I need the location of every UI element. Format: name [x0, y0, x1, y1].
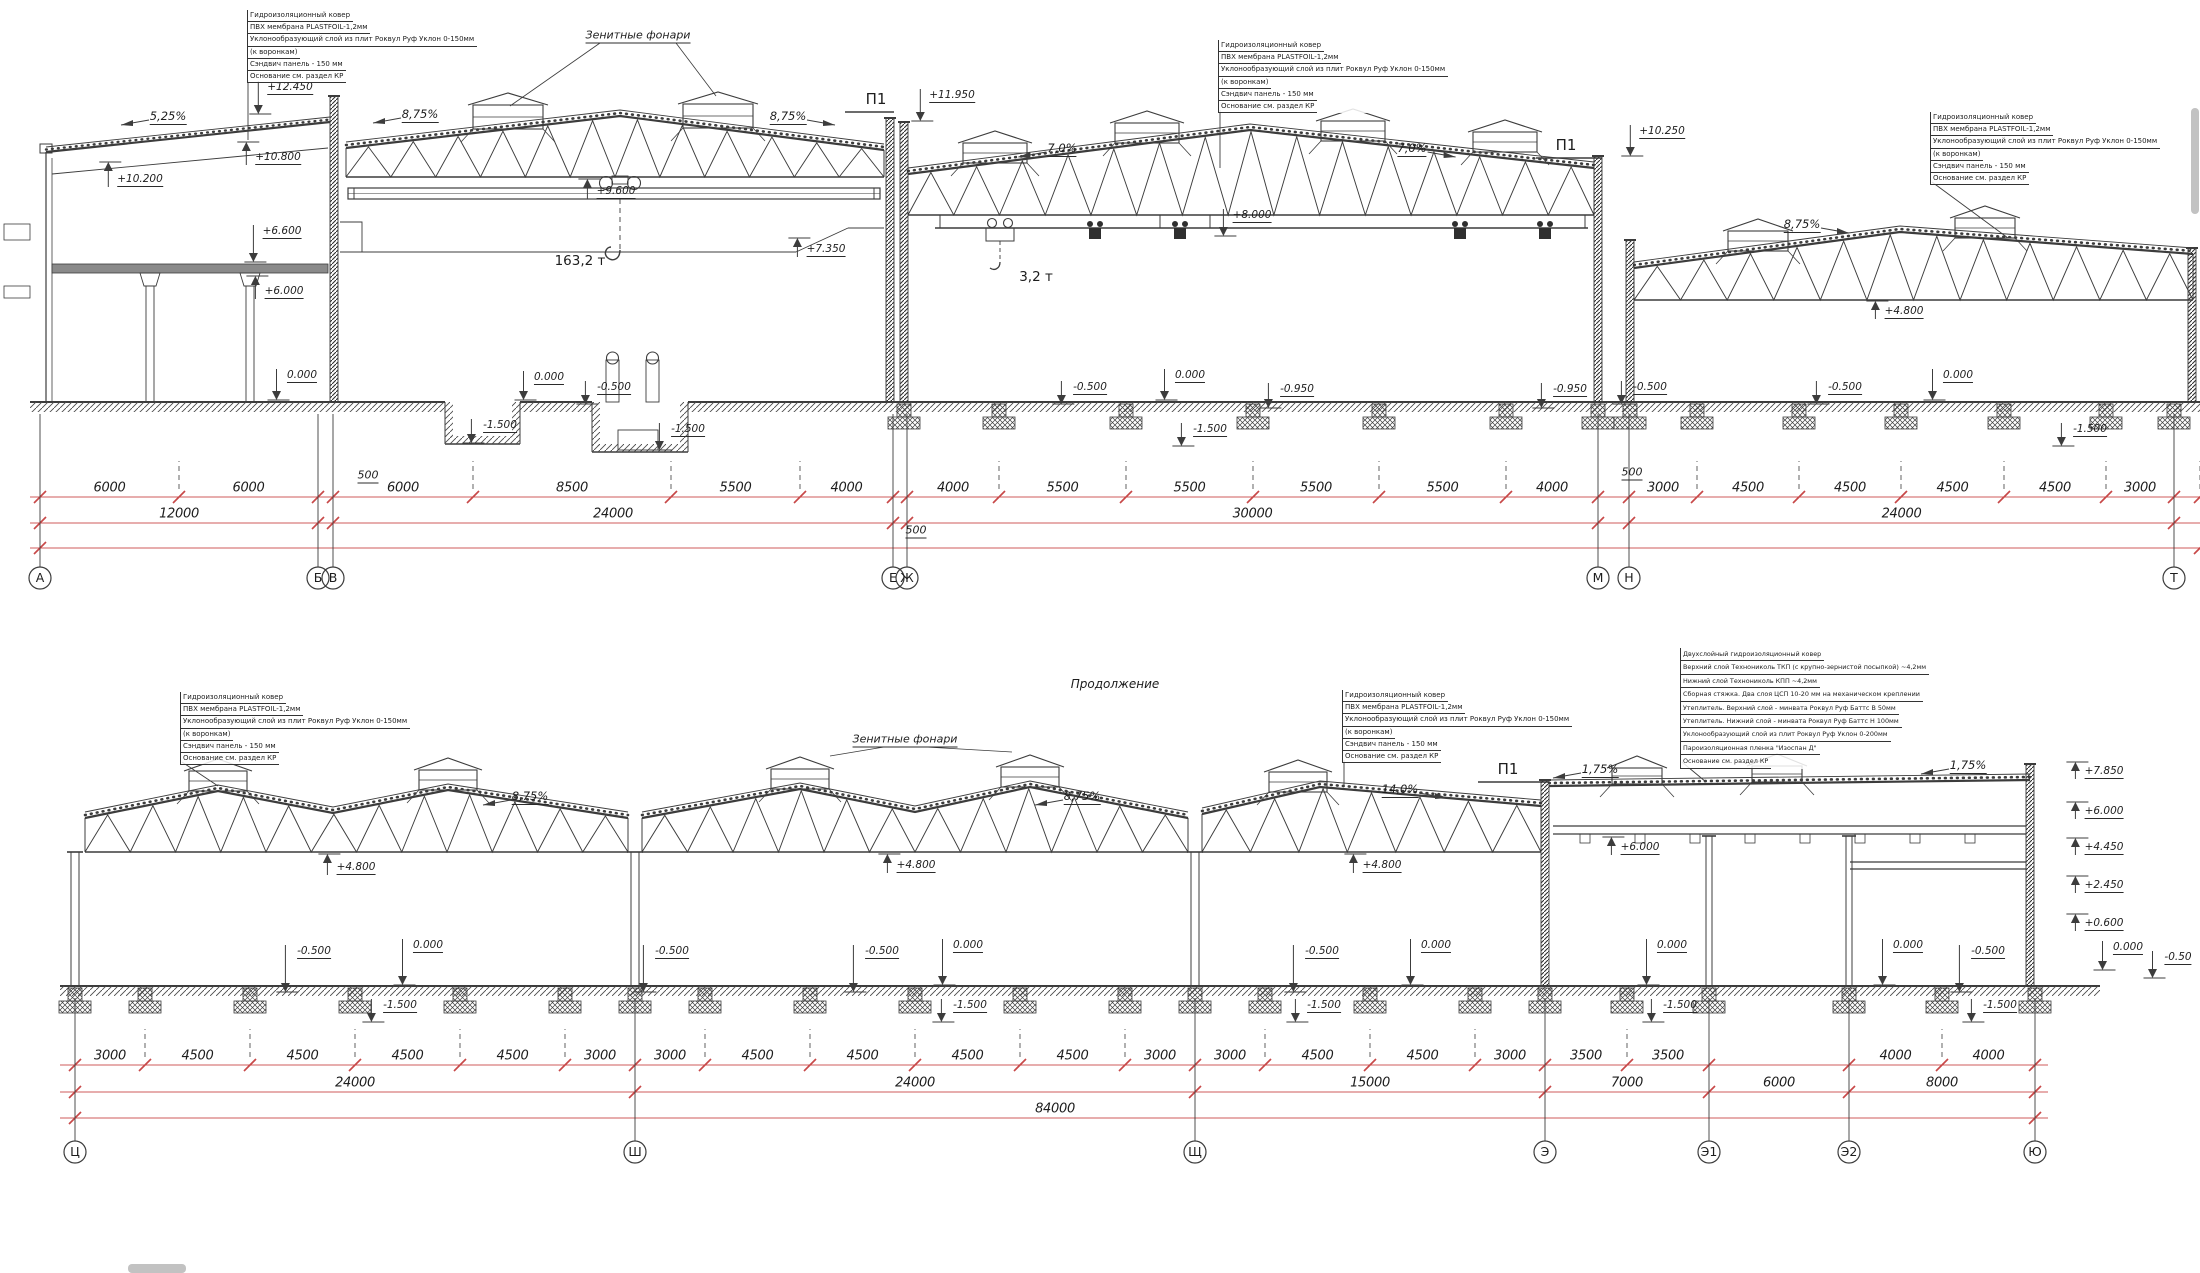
dim-label: 7000 — [1611, 1076, 1643, 1091]
dim-label: 5500 — [1174, 481, 1206, 496]
dim-label: 3000 — [1647, 481, 1679, 496]
elevation-label: -0.500 — [655, 945, 689, 959]
axis-bubble-label: Ц — [70, 1144, 80, 1159]
axis-bubble-label: Н — [1624, 570, 1633, 585]
elevation-label: -0.500 — [1073, 381, 1107, 395]
roof-callout-line: Пароизоляционная пленка "Изоспан Д" — [1681, 742, 1820, 755]
roof-assembly-callout: Двухслойный гидроизоляционный коверВерхн… — [1680, 648, 1929, 769]
elevation-label: -1.500 — [953, 999, 987, 1013]
slope-label: 8,75% — [512, 789, 549, 805]
roof-callout-line: Гидроизоляционный ковер — [1219, 40, 1324, 52]
elevation-label: +4.450 — [2085, 841, 2124, 855]
dim-label: 6000 — [1763, 1076, 1795, 1091]
roof-callout-line: Основание см. раздел КР — [1931, 173, 2029, 185]
elevation-label: +4.800 — [1885, 305, 1924, 319]
slope-label: 1,75% — [1582, 762, 1619, 778]
elevation-label: -1.500 — [383, 999, 417, 1013]
elevation-label: 0.000 — [1175, 369, 1205, 383]
dim-label: 4000 — [937, 481, 969, 496]
dim-label: 4500 — [1732, 481, 1764, 496]
roof-callout-line: Гидроизоляционный ковер — [1931, 112, 2036, 124]
slope-label: 8,75% — [1064, 789, 1101, 805]
dim-label: 15000 — [1350, 1076, 1390, 1091]
roof-callout-line: Нижний слой Технониколь КПП ~4,2мм — [1681, 675, 1820, 688]
continuation-label: Продолжение — [1071, 677, 1160, 691]
dim-label: 5500 — [720, 481, 752, 496]
elevation-label: +8.000 — [1233, 209, 1272, 223]
roof-callout-line: (к воронкам) — [248, 47, 300, 59]
axis-bubble-label: Щ — [1188, 1144, 1202, 1159]
roof-callout-line: Сэндвич панель - 150 мм — [181, 741, 279, 753]
roof-callout-line: (к воронкам) — [181, 729, 233, 741]
dim-label: 3000 — [654, 1049, 686, 1064]
roof-callout-line: Сэндвич панель - 150 мм — [248, 59, 346, 71]
dim-label: 6000 — [94, 481, 126, 496]
slope-label: 7,0% — [1047, 141, 1076, 157]
roof-callout-line: Утеплитель. Верхний слой - минвата Рокву… — [1681, 702, 1899, 715]
elevation-label: +11.950 — [929, 89, 975, 103]
elevation-label: 0.000 — [2113, 941, 2143, 955]
dim-label: 24000 — [1882, 507, 1922, 522]
elevation-label: -0.950 — [1280, 383, 1314, 397]
roof-callout-line: Основание см. раздел КР — [1681, 755, 1771, 768]
elevation-label: -1.500 — [1983, 999, 2017, 1013]
elevation-label: 0.000 — [413, 939, 443, 953]
dim-label: 4500 — [847, 1049, 879, 1064]
roof-callout-line: ПВХ мембрана PLASTFOIL-1,2мм — [1343, 702, 1465, 714]
roof-callout-line: Сэндвич панель - 150 мм — [1219, 89, 1317, 101]
elevation-label: -1.500 — [1307, 999, 1341, 1013]
elevation-label: +0.600 — [2085, 917, 2124, 931]
drawing-canvas: Продолжение 163,2 т 3,2 т Зенитные фонар… — [0, 0, 2200, 1273]
elevation-label: +2.450 — [2085, 879, 2124, 893]
elevation-label: 0.000 — [534, 371, 564, 385]
dim-label-small: 500 — [1622, 466, 1643, 481]
hoist-capacity-label: 3,2 т — [1019, 269, 1053, 285]
roof-assembly-callout: Гидроизоляционный коверПВХ мембрана PLAS… — [1342, 690, 1572, 763]
elevation-label: +6.000 — [2085, 805, 2124, 819]
marker-layer — [99, 43, 2165, 1022]
elevation-label: 0.000 — [1943, 369, 1973, 383]
skylights-label-bottom: Зенитные фонари — [853, 733, 958, 748]
dim-label: 3500 — [1570, 1049, 1602, 1064]
slope-label: 8,75% — [770, 109, 807, 125]
roof-callout-line: ПВХ мембрана PLASTFOIL-1,2мм — [181, 704, 303, 716]
dim-label: 5500 — [1047, 481, 1079, 496]
elevation-label: -1.500 — [1663, 999, 1697, 1013]
dim-label: 4500 — [742, 1049, 774, 1064]
roof-callout-line: (к воронкам) — [1219, 77, 1271, 89]
dim-label: 3000 — [1214, 1049, 1246, 1064]
roof-callout-line: Уклонообразующий слой из плит Роквул Руф… — [1931, 136, 2160, 148]
elevation-label: -0.500 — [1971, 945, 2005, 959]
elevation-label: +4.800 — [337, 861, 376, 875]
dim-label: 8500 — [556, 481, 588, 496]
axis-bubble-label: А — [36, 570, 45, 585]
dim-label: 30000 — [1233, 507, 1273, 522]
roof-callout-line: Основание см. раздел КР — [1343, 751, 1441, 763]
roof-callout-line: Основание см. раздел КР — [181, 753, 279, 765]
elevation-label: -0.500 — [1305, 945, 1339, 959]
roof-callout-line: Сборная стяжка. Два слоя ЦСП 10-20 мм на… — [1681, 688, 1923, 701]
axis-bubble-label: Т — [2170, 570, 2178, 585]
slope-label: 7,0% — [1397, 141, 1426, 157]
dim-label: 4500 — [182, 1049, 214, 1064]
dim-label: 4500 — [1407, 1049, 1439, 1064]
dim-label: 6000 — [387, 481, 419, 496]
roof-callout-line: Основание см. раздел КР — [248, 71, 346, 83]
roof-assembly-callout: Гидроизоляционный коверПВХ мембрана PLAS… — [1930, 112, 2160, 185]
dim-label: 4500 — [287, 1049, 319, 1064]
dim-label: 24000 — [335, 1076, 375, 1091]
roof-callout-line: Верхний слой Технониколь ТКП (с крупно-з… — [1681, 661, 1929, 674]
dim-label: 4500 — [1057, 1049, 1089, 1064]
elevation-label: +6.000 — [265, 285, 304, 299]
roof-callout-line: (к воронкам) — [1931, 149, 1983, 161]
elevation-label: +7.850 — [2085, 765, 2124, 779]
elevation-label: +10.250 — [1639, 125, 1685, 139]
dim-label: 3000 — [94, 1049, 126, 1064]
elevation-label: 0.000 — [1421, 939, 1451, 953]
dim-label: 24000 — [593, 507, 633, 522]
dim-label-small: 500 — [906, 524, 927, 539]
axis-bubble-label: Э2 — [1841, 1144, 1858, 1159]
dim-label: 3000 — [2124, 481, 2156, 496]
slope-label: 1,75% — [1950, 758, 1987, 774]
axis-bubble-label: М — [1593, 570, 1604, 585]
roof-callout-line: Двухслойный гидроизоляционный ковер — [1681, 648, 1824, 661]
elevation-label: -1.500 — [483, 419, 517, 433]
dim-label: 12000 — [159, 507, 199, 522]
slope-label: 8,75% — [1784, 217, 1821, 233]
axis-bubble-label: Ж — [900, 570, 913, 585]
dimension-layer — [30, 461, 2200, 1124]
dim-label: 5500 — [1427, 481, 1459, 496]
roof-callout-line: (к воронкам) — [1343, 727, 1395, 739]
dim-label: 3000 — [584, 1049, 616, 1064]
axis-bubble-label: Э — [1541, 1144, 1550, 1159]
axis-bubble-label: Б — [314, 570, 323, 585]
skylights-label-top: Зенитные фонари — [586, 29, 691, 44]
slope-label: 5,25% — [150, 109, 187, 125]
dim-label: 4500 — [1937, 481, 1969, 496]
roof-callout-line: Утеплитель. Нижний слой - минвата Роквул… — [1681, 715, 1902, 728]
roof-assembly-callout: Гидроизоляционный коверПВХ мембрана PLAS… — [180, 692, 410, 765]
dim-label: 4000 — [1973, 1049, 2005, 1064]
elevation-label: -0.50 — [2164, 951, 2191, 965]
dim-label: 3000 — [1494, 1049, 1526, 1064]
dim-label: 5500 — [1300, 481, 1332, 496]
axis-bubble-label: В — [329, 570, 338, 585]
section-mark-p1: П1 — [866, 90, 887, 108]
elevation-label: +10.800 — [255, 151, 301, 165]
elevation-label: -0.500 — [1828, 381, 1862, 395]
dim-label: 3500 — [1652, 1049, 1684, 1064]
elevation-label: -0.500 — [297, 945, 331, 959]
axis-bubble-label: Ю — [2028, 1144, 2042, 1159]
roof-callout-line: Гидроизоляционный ковер — [1343, 690, 1448, 702]
roof-callout-line: Уклонообразующий слой из плит Роквул Руф… — [248, 34, 477, 46]
dim-label: 4000 — [1880, 1049, 1912, 1064]
dim-label-small: 500 — [358, 469, 379, 484]
elevation-label: -0.500 — [865, 945, 899, 959]
elevation-label: 0.000 — [953, 939, 983, 953]
dim-label: 6000 — [233, 481, 265, 496]
elevation-label: -0.950 — [1553, 383, 1587, 397]
elevation-label: +4.800 — [897, 859, 936, 873]
elevation-label: -0.500 — [597, 381, 631, 395]
crane-capacity-label: 163,2 т — [555, 253, 606, 269]
dim-label: 4000 — [831, 481, 863, 496]
roof-callout-line: Сэндвич панель - 150 мм — [1931, 161, 2029, 173]
elevation-label: +7.350 — [807, 243, 846, 257]
elevation-label: +6.000 — [1621, 841, 1660, 855]
roof-callout-line: Уклонообразующий слой из плит Роквул Руф… — [1681, 728, 1891, 741]
section-mark-p1: П1 — [1556, 136, 1577, 154]
roof-callout-line: ПВХ мембрана PLASTFOIL-1,2мм — [1219, 52, 1341, 64]
roof-assembly-callout: Гидроизоляционный коверПВХ мембрана PLAS… — [247, 10, 477, 83]
roof-callout-line: Уклонообразующий слой из плит Роквул Руф… — [1219, 64, 1448, 76]
roof-callout-line: Сэндвич панель - 150 мм — [1343, 739, 1441, 751]
elevation-label: -1.500 — [2073, 423, 2107, 437]
elevation-label: 0.000 — [1893, 939, 1923, 953]
axis-layer — [29, 414, 2185, 1163]
dim-label: 4000 — [1536, 481, 1568, 496]
elevation-label: 0.000 — [287, 369, 317, 383]
roof-callout-line: Уклонообразующий слой из плит Роквул Руф… — [1343, 714, 1572, 726]
elevation-label: +6.600 — [263, 225, 302, 239]
roof-assembly-callout: Гидроизоляционный коверПВХ мембрана PLAS… — [1218, 40, 1448, 113]
elevation-label: +4.800 — [1363, 859, 1402, 873]
axis-bubble-label: Е — [889, 570, 897, 585]
dim-label: 4500 — [1302, 1049, 1334, 1064]
elevation-label: -1.500 — [671, 423, 705, 437]
elevation-label: +10.200 — [117, 173, 163, 187]
dim-label: 8000 — [1926, 1076, 1958, 1091]
dim-label: 4500 — [497, 1049, 529, 1064]
roof-callout-line: Уклонообразующий слой из плит Роквул Руф… — [181, 716, 410, 728]
horizontal-scrollbar-thumb[interactable] — [128, 1264, 186, 1273]
roof-callout-line: Основание см. раздел КР — [1219, 101, 1317, 113]
vertical-scrollbar-thumb[interactable] — [2191, 108, 2199, 214]
dim-label: 4500 — [1834, 481, 1866, 496]
dim-label: 24000 — [895, 1076, 935, 1091]
slope-label: 8,75% — [402, 107, 439, 123]
axis-bubble-label: Ш — [628, 1144, 641, 1159]
elevation-label: -1.500 — [1193, 423, 1227, 437]
roof-callout-line: Гидроизоляционный ковер — [248, 10, 353, 22]
roof-callout-line: ПВХ мембрана PLASTFOIL-1,2мм — [1931, 124, 2053, 136]
slope-label: 14,0% — [1382, 782, 1419, 798]
dim-label: 4500 — [952, 1049, 984, 1064]
elevation-label: +9.600 — [597, 185, 636, 199]
elevation-label: 0.000 — [1657, 939, 1687, 953]
roof-callout-line: ПВХ мембрана PLASTFOIL-1,2мм — [248, 22, 370, 34]
dim-label: 84000 — [1035, 1102, 1075, 1117]
dim-label: 3000 — [1144, 1049, 1176, 1064]
dim-label: 4500 — [2039, 481, 2071, 496]
section-drawing-svg — [0, 0, 2200, 1273]
roof-callout-line: Гидроизоляционный ковер — [181, 692, 286, 704]
dim-label: 4500 — [392, 1049, 424, 1064]
axis-bubble-label: Э1 — [1701, 1144, 1718, 1159]
elevation-label: -0.500 — [1633, 381, 1667, 395]
